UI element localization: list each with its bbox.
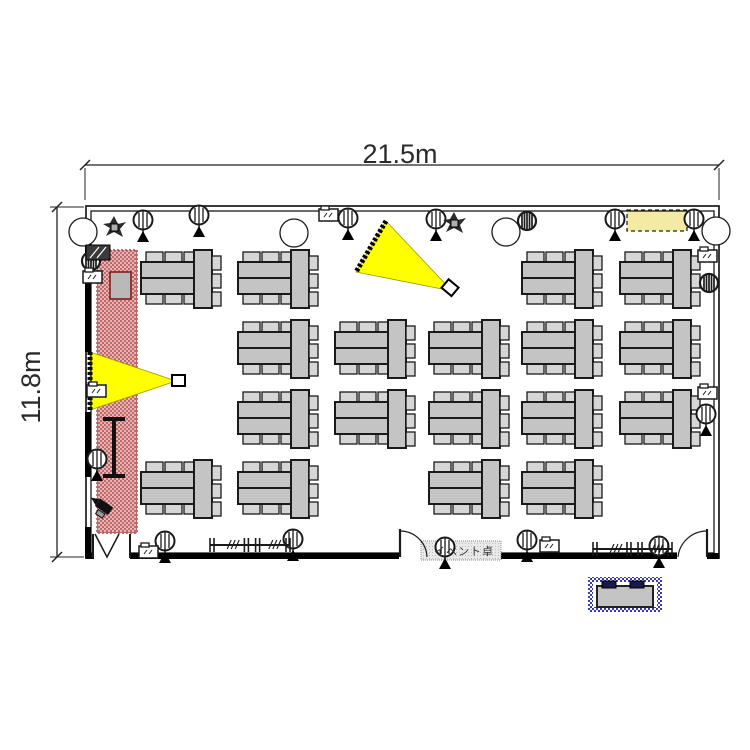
wall-light — [518, 212, 536, 230]
end-table-top — [673, 390, 691, 448]
chair — [243, 462, 260, 472]
column — [69, 218, 97, 246]
column — [492, 218, 520, 246]
chair — [434, 322, 451, 332]
chair — [546, 364, 563, 374]
speaker-box — [86, 245, 110, 260]
chair — [453, 434, 470, 444]
end-table-top — [673, 320, 691, 378]
chair — [243, 322, 260, 332]
chair — [644, 434, 661, 444]
chair — [546, 434, 563, 444]
chair — [262, 392, 279, 402]
dining-table-unit — [238, 250, 318, 308]
chair — [406, 344, 415, 358]
chair — [262, 504, 279, 514]
projector — [442, 279, 459, 296]
chair — [644, 364, 661, 374]
box-body — [540, 540, 559, 552]
box-tab — [542, 537, 550, 541]
chair — [359, 322, 376, 332]
chair — [453, 504, 470, 514]
chair — [500, 326, 509, 340]
chair — [644, 392, 661, 402]
chair — [165, 252, 182, 262]
chair — [527, 252, 544, 262]
plant-pot — [451, 220, 458, 227]
box-tab — [85, 268, 93, 272]
chair — [262, 364, 279, 374]
highlight-area — [627, 210, 687, 231]
end-table-top — [482, 460, 500, 518]
tripod-light — [190, 206, 209, 238]
end-table-top — [388, 390, 406, 448]
chair — [262, 294, 279, 304]
chair — [243, 252, 260, 262]
box-tab — [141, 543, 149, 547]
chair — [500, 466, 509, 480]
tripod-light — [606, 210, 625, 242]
chair — [691, 432, 700, 446]
chair — [500, 484, 509, 498]
chair — [546, 462, 563, 472]
chair — [262, 462, 279, 472]
chair — [593, 414, 602, 428]
wall-thick — [85, 412, 91, 477]
dimension-label-width: 21.5m — [362, 139, 437, 169]
chair — [644, 294, 661, 304]
plant-pot — [111, 224, 118, 231]
tripod-base — [193, 226, 205, 237]
chair — [262, 252, 279, 262]
chair — [625, 392, 642, 402]
chair — [340, 434, 357, 444]
tripod-base — [609, 230, 621, 241]
chair — [500, 432, 509, 446]
chair — [309, 344, 318, 358]
chair — [691, 326, 700, 340]
dining-table-unit — [522, 390, 602, 448]
chair — [593, 466, 602, 480]
dining-table-unit — [620, 320, 700, 378]
chair — [453, 462, 470, 472]
chair — [309, 274, 318, 288]
chair — [146, 294, 163, 304]
chair — [309, 326, 318, 340]
chair — [212, 466, 221, 480]
chair — [165, 504, 182, 514]
chair — [644, 252, 661, 262]
tripod-base — [430, 230, 442, 241]
chair — [243, 364, 260, 374]
chair — [434, 434, 451, 444]
chair — [527, 294, 544, 304]
chair — [359, 392, 376, 402]
chair — [309, 466, 318, 480]
chair — [146, 252, 163, 262]
projector-beam — [356, 221, 459, 296]
chair — [309, 292, 318, 306]
end-table-top — [194, 250, 212, 308]
dining-table-unit — [335, 320, 415, 378]
end-table-top — [575, 390, 593, 448]
chair — [309, 256, 318, 270]
dining-table-unit — [620, 390, 700, 448]
end-table-top — [575, 320, 593, 378]
tripod-light — [339, 209, 358, 241]
tripod-light — [697, 405, 716, 437]
chair — [625, 364, 642, 374]
reception-table — [597, 586, 653, 607]
chair — [340, 392, 357, 402]
speaker-body — [86, 245, 110, 260]
wall-light — [700, 274, 718, 292]
plan-root — [50, 160, 730, 612]
end-table-top — [291, 390, 309, 448]
chair — [593, 344, 602, 358]
chair — [243, 392, 260, 402]
equipment-box — [87, 382, 106, 397]
chair — [593, 362, 602, 376]
chair — [406, 414, 415, 428]
chair — [593, 256, 602, 270]
chair — [546, 252, 563, 262]
equipment-box — [83, 268, 102, 283]
end-table-top — [575, 250, 593, 308]
reception-item — [602, 581, 616, 588]
column — [280, 219, 308, 247]
box-body — [139, 546, 158, 558]
chair — [500, 396, 509, 410]
chair — [625, 434, 642, 444]
tripod-base — [137, 231, 149, 242]
box-tab — [700, 384, 708, 388]
dimension-label-height: 11.8m — [16, 350, 46, 423]
chair — [434, 504, 451, 514]
chair — [243, 504, 260, 514]
tripod-light — [134, 211, 153, 243]
box-body — [698, 250, 717, 262]
end-table-top — [291, 460, 309, 518]
equipment-box — [698, 384, 717, 399]
chair — [546, 504, 563, 514]
chair — [546, 392, 563, 402]
chair — [406, 362, 415, 376]
end-table-top — [388, 320, 406, 378]
wall-opening — [93, 550, 130, 560]
chair — [309, 484, 318, 498]
stage-block — [110, 272, 131, 299]
chair — [309, 396, 318, 410]
chair — [212, 274, 221, 288]
chair — [500, 502, 509, 516]
chair — [453, 392, 470, 402]
chair — [262, 322, 279, 332]
chair — [527, 364, 544, 374]
dining-table-unit — [522, 250, 602, 308]
chair — [593, 326, 602, 340]
chair — [434, 364, 451, 374]
chair — [644, 322, 661, 332]
chair — [165, 462, 182, 472]
dining-table-unit — [238, 320, 318, 378]
box-body — [319, 209, 338, 221]
chair — [527, 322, 544, 332]
chair — [243, 434, 260, 444]
wall-thick — [130, 553, 399, 559]
chair — [340, 322, 357, 332]
chair — [527, 392, 544, 402]
end-table-top — [291, 250, 309, 308]
chair — [593, 274, 602, 288]
wall-opening — [677, 550, 707, 560]
dining-table-unit — [335, 390, 415, 448]
chair — [500, 414, 509, 428]
floor-plan-page: 21.5m 11.8m イベント卓 — [0, 0, 750, 750]
reception-item — [630, 581, 644, 588]
chair — [691, 292, 700, 306]
chair — [359, 364, 376, 374]
dining-table-unit — [429, 320, 509, 378]
chair — [453, 322, 470, 332]
end-table-top — [291, 320, 309, 378]
chair — [309, 362, 318, 376]
chair — [546, 322, 563, 332]
end-table-top — [673, 250, 691, 308]
box-tab — [700, 247, 708, 251]
dining-table-unit — [238, 390, 318, 448]
dining-table-unit — [522, 320, 602, 378]
box-tab — [321, 206, 329, 210]
tripod-base — [688, 230, 700, 241]
tripod-base — [342, 229, 354, 240]
chair — [625, 322, 642, 332]
chair — [309, 414, 318, 428]
chair — [212, 484, 221, 498]
chair — [691, 274, 700, 288]
chair — [340, 364, 357, 374]
tripod-light — [685, 210, 704, 242]
chair — [625, 294, 642, 304]
plant — [443, 212, 466, 233]
wall-thick — [707, 553, 719, 559]
end-table-top — [482, 320, 500, 378]
chair — [625, 252, 642, 262]
end-table-top — [482, 390, 500, 448]
chair — [212, 502, 221, 516]
dining-table-unit — [141, 460, 221, 518]
chair — [691, 344, 700, 358]
chair — [593, 432, 602, 446]
chair — [309, 432, 318, 446]
chair — [453, 364, 470, 374]
chair — [262, 434, 279, 444]
chair — [434, 392, 451, 402]
chair — [406, 432, 415, 446]
tripod-light — [427, 210, 446, 242]
chair — [212, 292, 221, 306]
chair — [212, 256, 221, 270]
box-tab — [89, 382, 97, 386]
event-desk-label: イベント卓 — [434, 545, 494, 558]
plant — [103, 216, 126, 237]
chair — [593, 396, 602, 410]
projector — [172, 375, 185, 386]
chair — [243, 294, 260, 304]
equipment-box — [139, 543, 158, 558]
chair — [146, 504, 163, 514]
chair — [527, 462, 544, 472]
equipment-box — [540, 537, 559, 552]
reception-desk — [588, 577, 662, 612]
beam-cone — [356, 221, 452, 291]
dining-table-unit — [620, 250, 700, 308]
floor-plan-svg: 21.5m 11.8m イベント卓 — [0, 0, 750, 750]
end-table-top — [575, 460, 593, 518]
projector-beam — [90, 352, 185, 410]
chair — [165, 294, 182, 304]
chair — [309, 502, 318, 516]
chair — [527, 504, 544, 514]
end-table-top — [194, 460, 212, 518]
box-body — [87, 385, 106, 397]
chair — [593, 292, 602, 306]
chair — [546, 294, 563, 304]
column — [702, 217, 730, 245]
chair — [593, 484, 602, 498]
equipment-box — [698, 247, 717, 262]
box-body — [83, 271, 102, 283]
chair — [527, 434, 544, 444]
chair — [691, 362, 700, 376]
chair — [146, 462, 163, 472]
dining-table-unit — [522, 460, 602, 518]
dining-table-unit — [429, 460, 509, 518]
chair — [406, 396, 415, 410]
crowd-barrier — [210, 538, 290, 552]
chair — [434, 462, 451, 472]
chair — [500, 362, 509, 376]
chair — [359, 434, 376, 444]
equipment-box — [319, 206, 338, 221]
chair — [406, 326, 415, 340]
box-body — [698, 387, 717, 399]
dining-table-unit — [429, 390, 509, 448]
dining-table-unit — [238, 460, 318, 518]
chair — [500, 344, 509, 358]
dining-table-unit — [141, 250, 221, 308]
tripod-base — [700, 425, 712, 436]
chair — [593, 502, 602, 516]
